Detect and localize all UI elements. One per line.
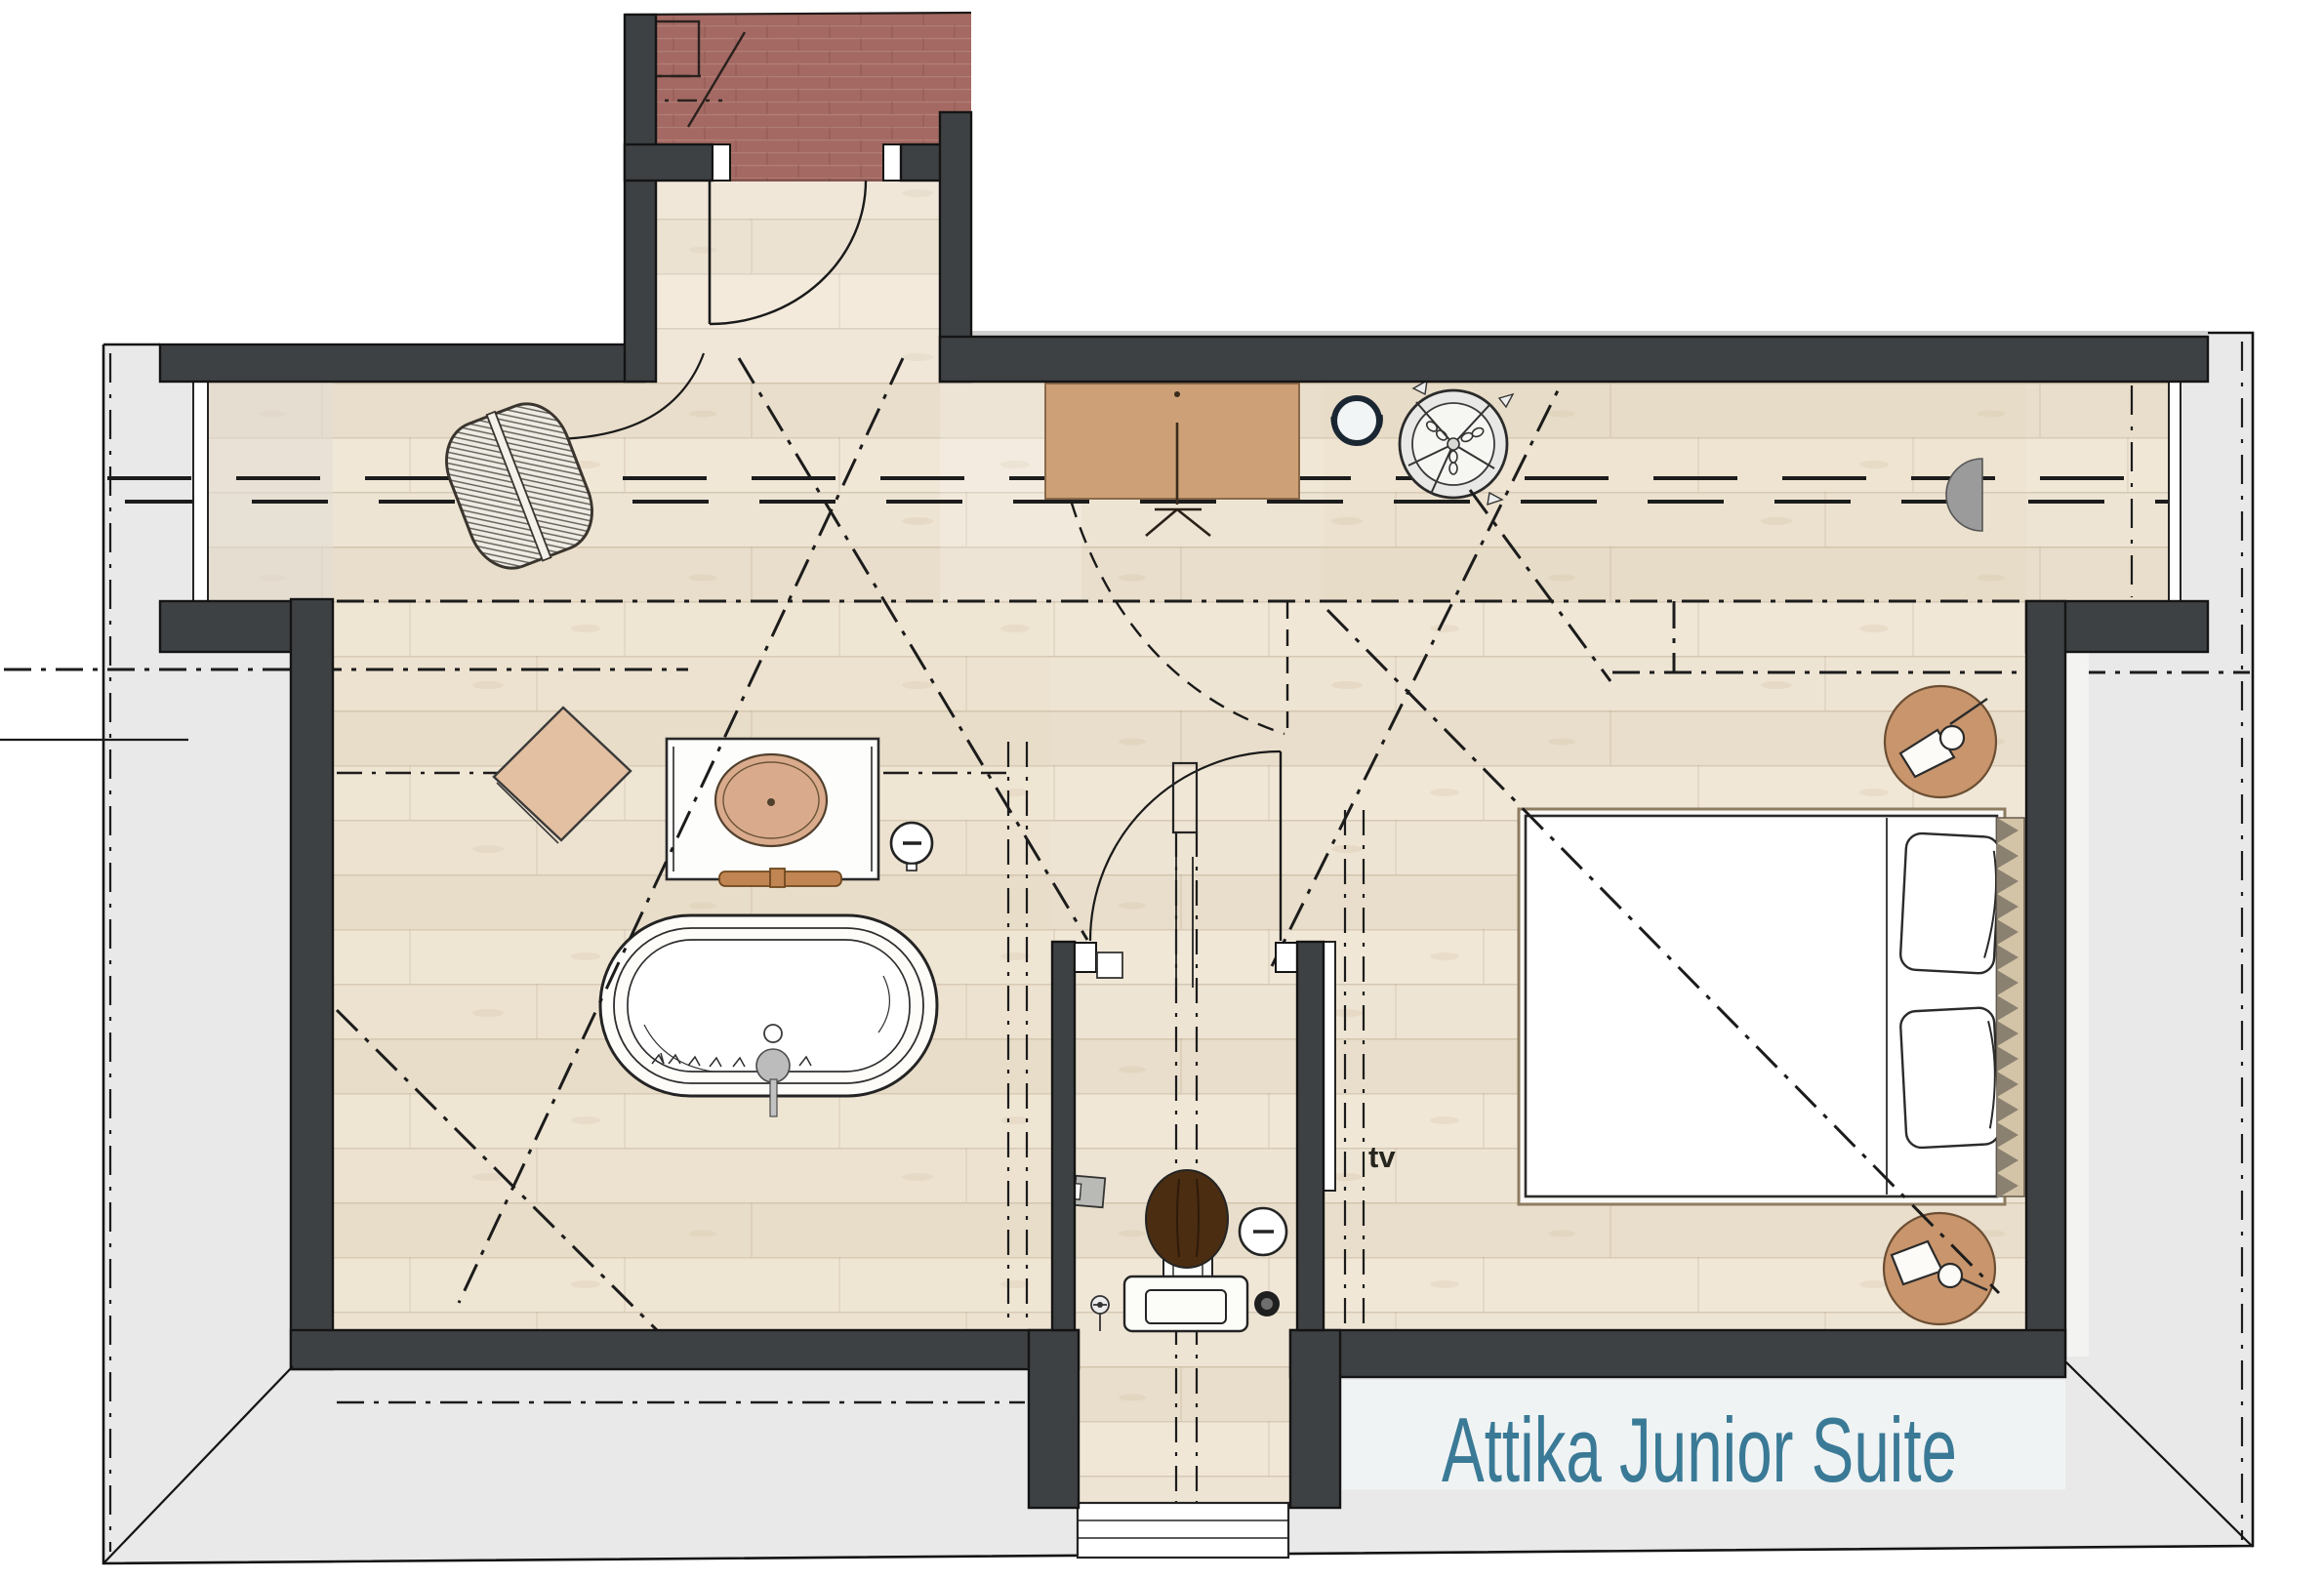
svg-text:tv: tv: [1368, 1140, 1396, 1174]
svg-text:Attika Junior Suite: Attika Junior Suite: [1442, 1398, 1957, 1501]
